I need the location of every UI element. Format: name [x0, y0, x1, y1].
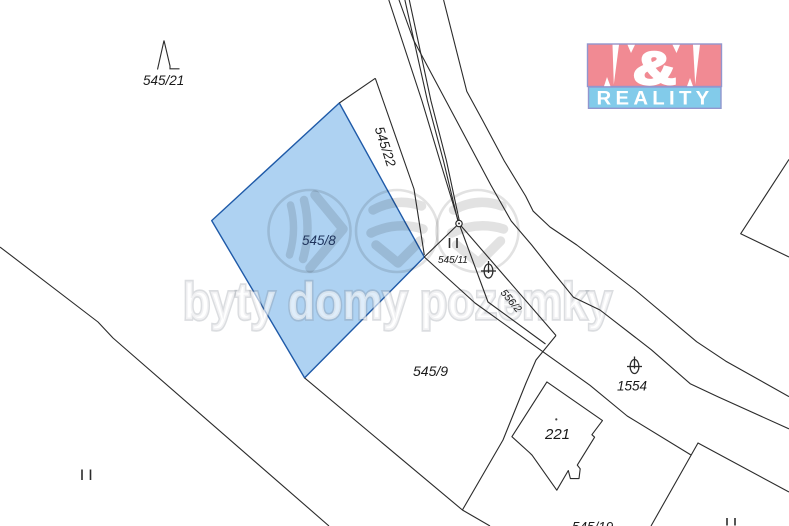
- svg-text:545/9: 545/9: [413, 363, 448, 379]
- svg-text:REALITY: REALITY: [597, 89, 714, 110]
- svg-text:221: 221: [544, 426, 570, 443]
- svg-text:545/8: 545/8: [302, 233, 336, 248]
- svg-text:545/21: 545/21: [143, 73, 184, 88]
- svg-text:byty domy pozemky: byty domy pozemky: [183, 273, 612, 331]
- svg-text:545/11: 545/11: [438, 255, 468, 266]
- svg-text:1554: 1554: [617, 379, 647, 394]
- svg-text:545/19: 545/19: [572, 520, 614, 526]
